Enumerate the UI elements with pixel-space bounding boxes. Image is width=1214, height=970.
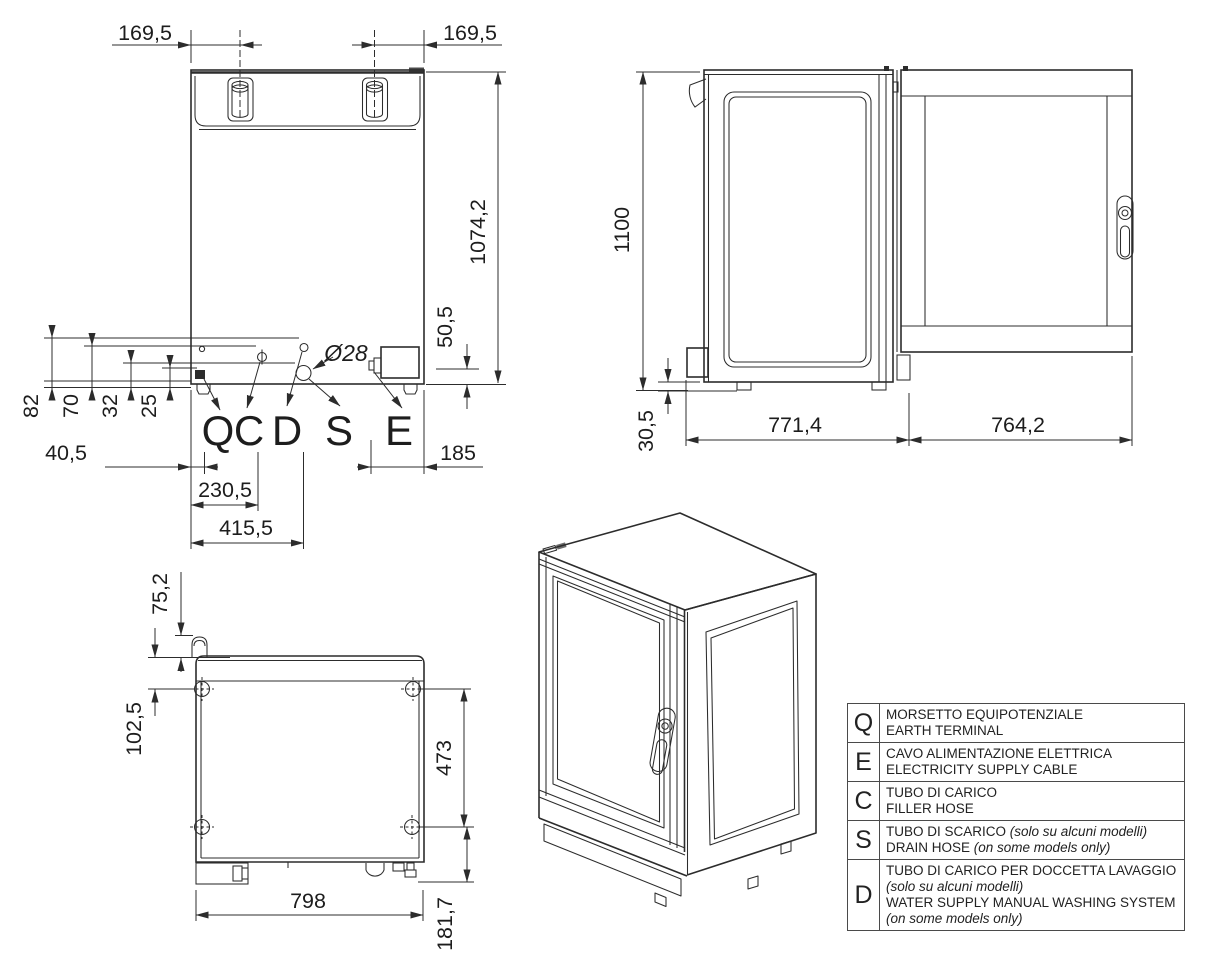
dim-798: 798 bbox=[290, 889, 326, 913]
callout-d: D bbox=[272, 407, 302, 454]
legend-desc-d: TUBO DI CARICO PER DOCCETTA LAVAGGIO (so… bbox=[880, 860, 1185, 931]
dim-30-5: 30,5 bbox=[634, 410, 658, 452]
legend-it: MORSETTO EQUIPOTENZIALE bbox=[886, 707, 1083, 722]
legend-key-q: Q bbox=[848, 704, 880, 743]
dim-771-4: 771,4 bbox=[768, 413, 822, 437]
legend-en: ELECTRICITY SUPPLY CABLE bbox=[886, 762, 1077, 777]
legend-key-s: S bbox=[848, 821, 880, 860]
legend-en: DRAIN HOSE bbox=[886, 840, 970, 855]
legend-it: TUBO DI CARICO PER DOCCETTA LAVAGGIO bbox=[886, 863, 1176, 878]
legend-it: TUBO DI CARICO bbox=[886, 785, 997, 800]
dim-50-5: 50,5 bbox=[433, 306, 457, 348]
legend-desc-q: MORSETTO EQUIPOTENZIALE EARTH TERMINAL bbox=[880, 704, 1185, 743]
legend-it-note: (solo su alcuni modelli) bbox=[886, 879, 1023, 894]
rear-view: 169,5 169,5 1074,2 50,5 82 70 32 bbox=[19, 21, 506, 549]
top-view: 75,2 102,5 473 181,7 798 bbox=[122, 572, 474, 951]
callout-s: S bbox=[325, 407, 353, 454]
dim-diameter-28: Ø28 bbox=[323, 340, 368, 366]
dim-473: 473 bbox=[432, 740, 456, 776]
legend-key-d: D bbox=[848, 860, 880, 931]
dim-40-5: 40,5 bbox=[45, 441, 87, 465]
dim-169-5-left: 169,5 bbox=[118, 21, 172, 45]
legend-it-note: (solo su alcuni modelli) bbox=[1010, 824, 1147, 839]
isometric-view bbox=[539, 513, 816, 907]
legend-row-d: D TUBO DI CARICO PER DOCCETTA LAVAGGIO (… bbox=[848, 860, 1185, 931]
dim-70: 70 bbox=[59, 394, 83, 418]
dim-185: 185 bbox=[440, 441, 476, 465]
dim-102-5: 102,5 bbox=[122, 702, 146, 756]
legend-desc-c: TUBO DI CARICO FILLER HOSE bbox=[880, 782, 1185, 821]
callout-e: E bbox=[385, 407, 413, 454]
dim-169-5-right: 169,5 bbox=[443, 21, 497, 45]
legend-key-e: E bbox=[848, 743, 880, 782]
side-view: 1100 30,5 771,4 764,2 bbox=[610, 66, 1133, 452]
legend-row-e: E CAVO ALIMENTAZIONE ELETTRICA ELECTRICI… bbox=[848, 743, 1185, 782]
legend-desc-s: TUBO DI SCARICO (solo su alcuni modelli)… bbox=[880, 821, 1185, 860]
dim-415-5: 415,5 bbox=[219, 516, 273, 540]
dim-82: 82 bbox=[19, 394, 43, 418]
dim-32: 32 bbox=[98, 394, 122, 418]
legend-it: TUBO DI SCARICO bbox=[886, 824, 1006, 839]
legend-en: FILLER HOSE bbox=[886, 801, 974, 816]
legend-desc-e: CAVO ALIMENTAZIONE ELETTRICA ELECTRICITY… bbox=[880, 743, 1185, 782]
legend-key-c: C bbox=[848, 782, 880, 821]
legend-row-q: Q MORSETTO EQUIPOTENZIALE EARTH TERMINAL bbox=[848, 704, 1185, 743]
dim-25: 25 bbox=[137, 394, 161, 418]
legend-en-note: (on some models only) bbox=[886, 911, 1023, 926]
legend-row-s: S TUBO DI SCARICO (solo su alcuni modell… bbox=[848, 821, 1185, 860]
legend-it: CAVO ALIMENTAZIONE ELETTRICA bbox=[886, 746, 1112, 761]
dim-1074-2: 1074,2 bbox=[466, 199, 490, 265]
legend-en: WATER SUPPLY MANUAL WASHING SYSTEM bbox=[886, 895, 1176, 910]
legend-en-note: (on some models only) bbox=[974, 840, 1111, 855]
callout-q: Q bbox=[202, 407, 235, 454]
dim-181-7: 181,7 bbox=[433, 897, 457, 951]
dim-764-2: 764,2 bbox=[991, 413, 1045, 437]
callout-c: C bbox=[234, 407, 264, 454]
technical-drawing-page: 169,5 169,5 1074,2 50,5 82 70 32 bbox=[0, 0, 1214, 970]
legend-table: Q MORSETTO EQUIPOTENZIALE EARTH TERMINAL… bbox=[847, 703, 1185, 931]
dim-1100: 1100 bbox=[610, 207, 634, 253]
legend-en: EARTH TERMINAL bbox=[886, 723, 1003, 738]
legend-row-c: C TUBO DI CARICO FILLER HOSE bbox=[848, 782, 1185, 821]
dim-75-2: 75,2 bbox=[148, 573, 172, 615]
dim-230-5: 230,5 bbox=[198, 478, 252, 502]
